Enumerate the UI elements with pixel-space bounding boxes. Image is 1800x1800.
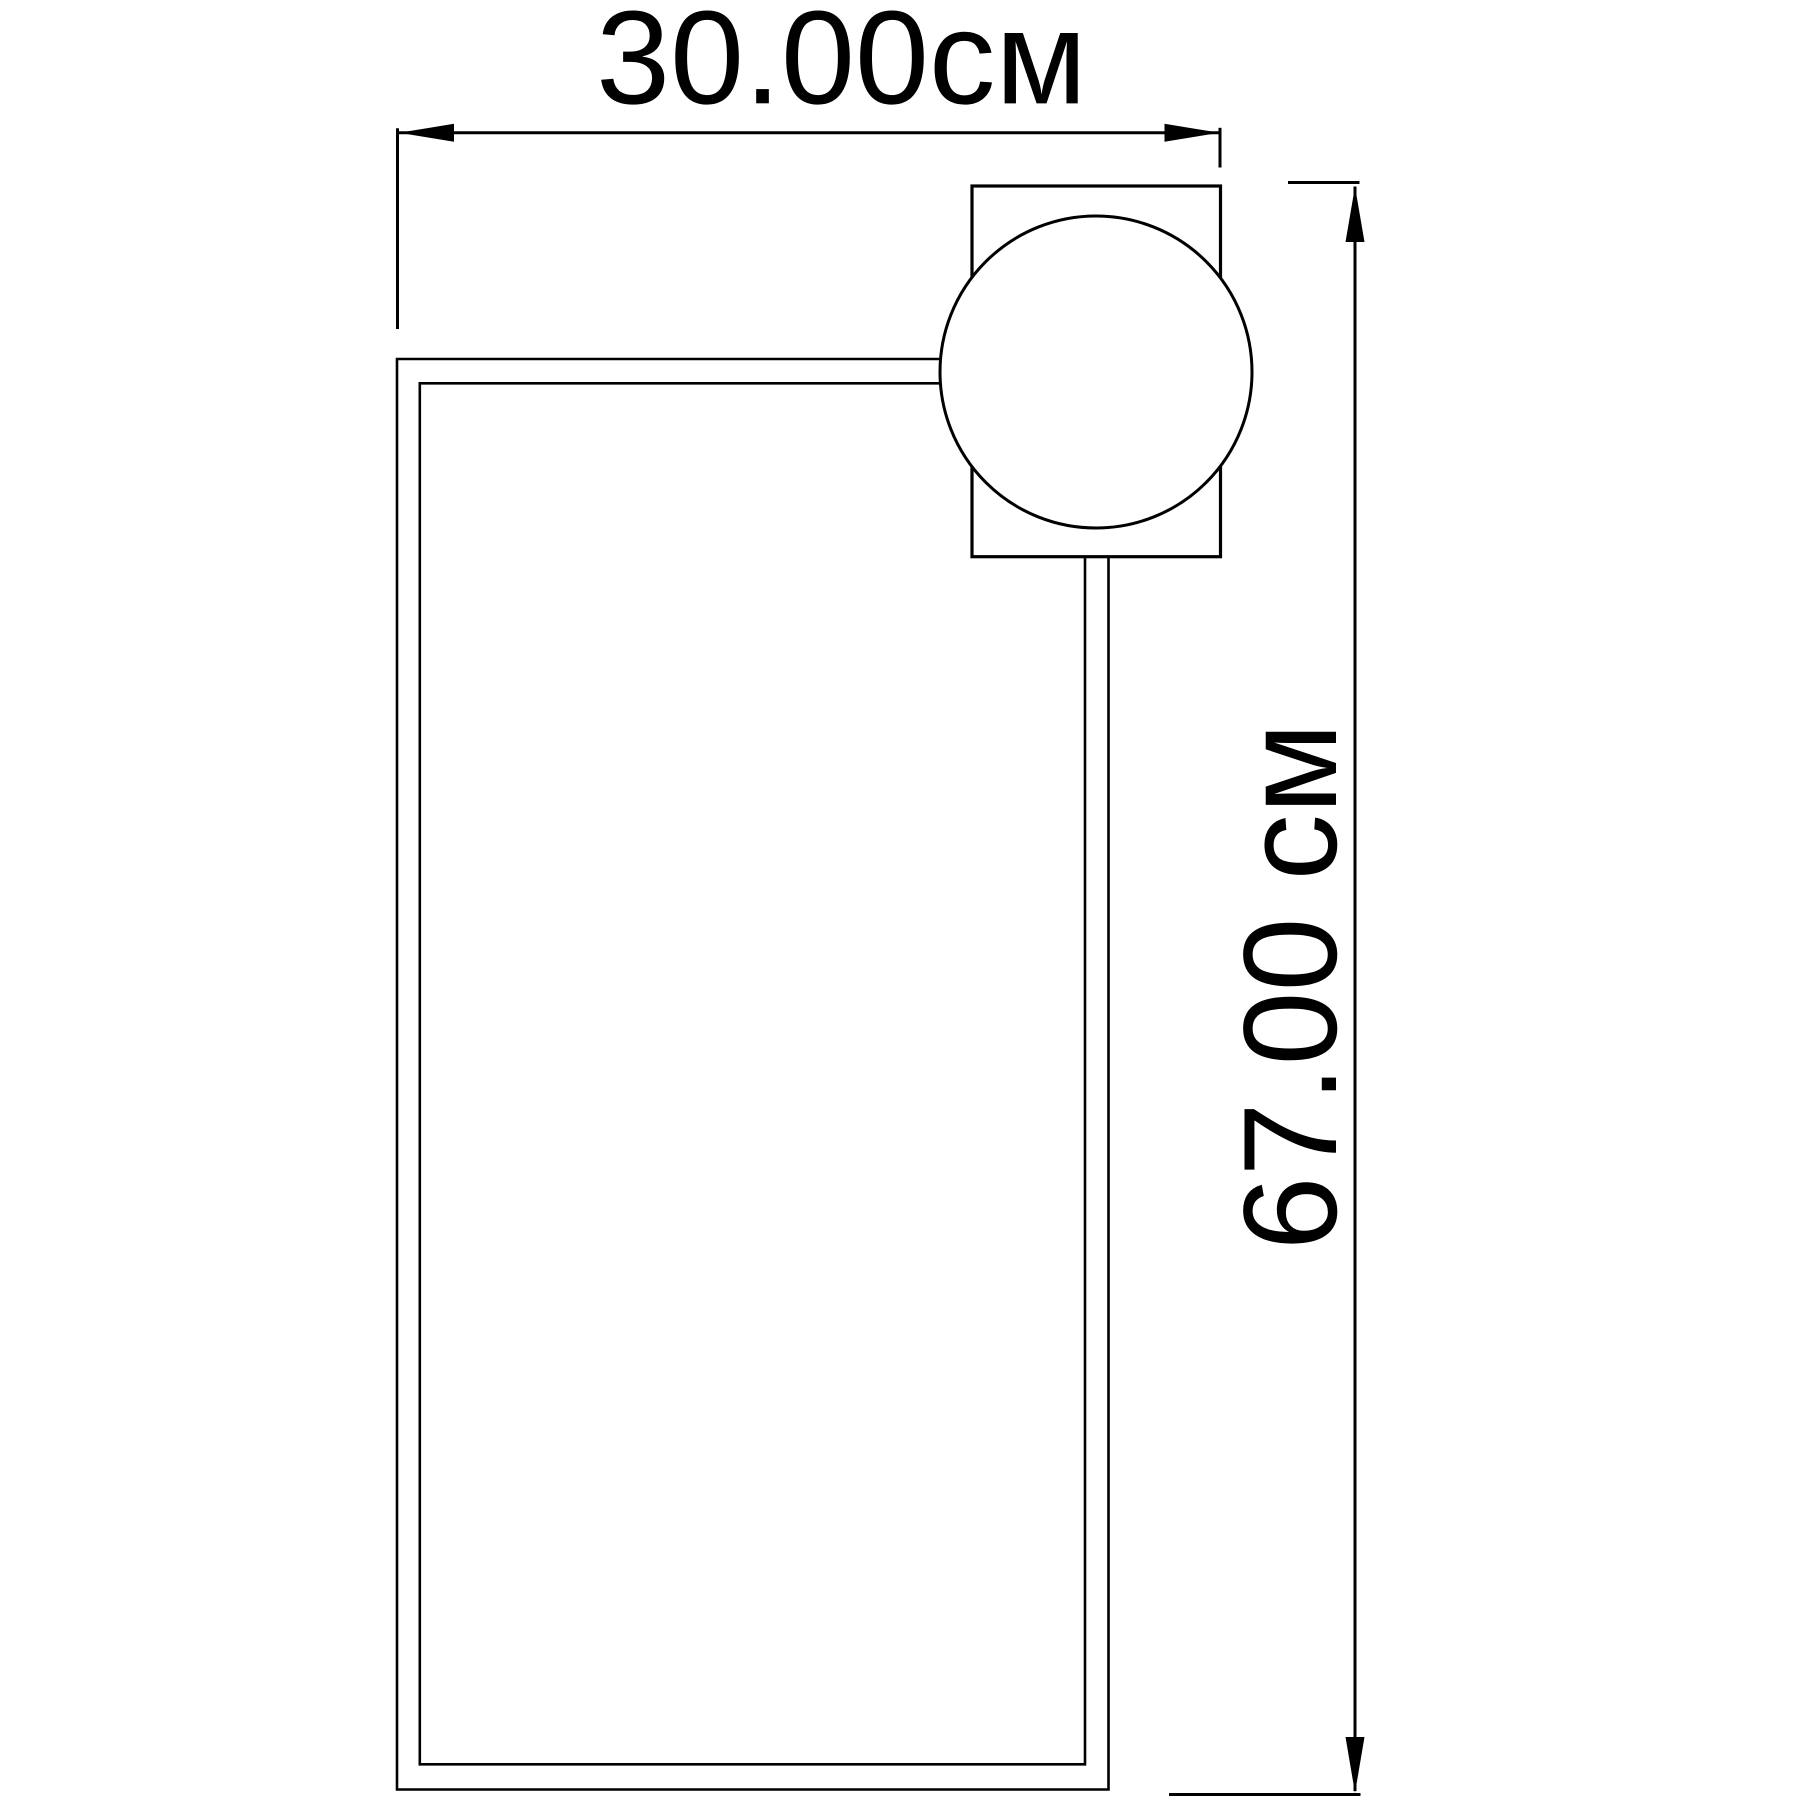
svg-text:30.00см: 30.00см: [596, 0, 1087, 132]
svg-text:67.00 см: 67.00 см: [1217, 723, 1365, 1251]
